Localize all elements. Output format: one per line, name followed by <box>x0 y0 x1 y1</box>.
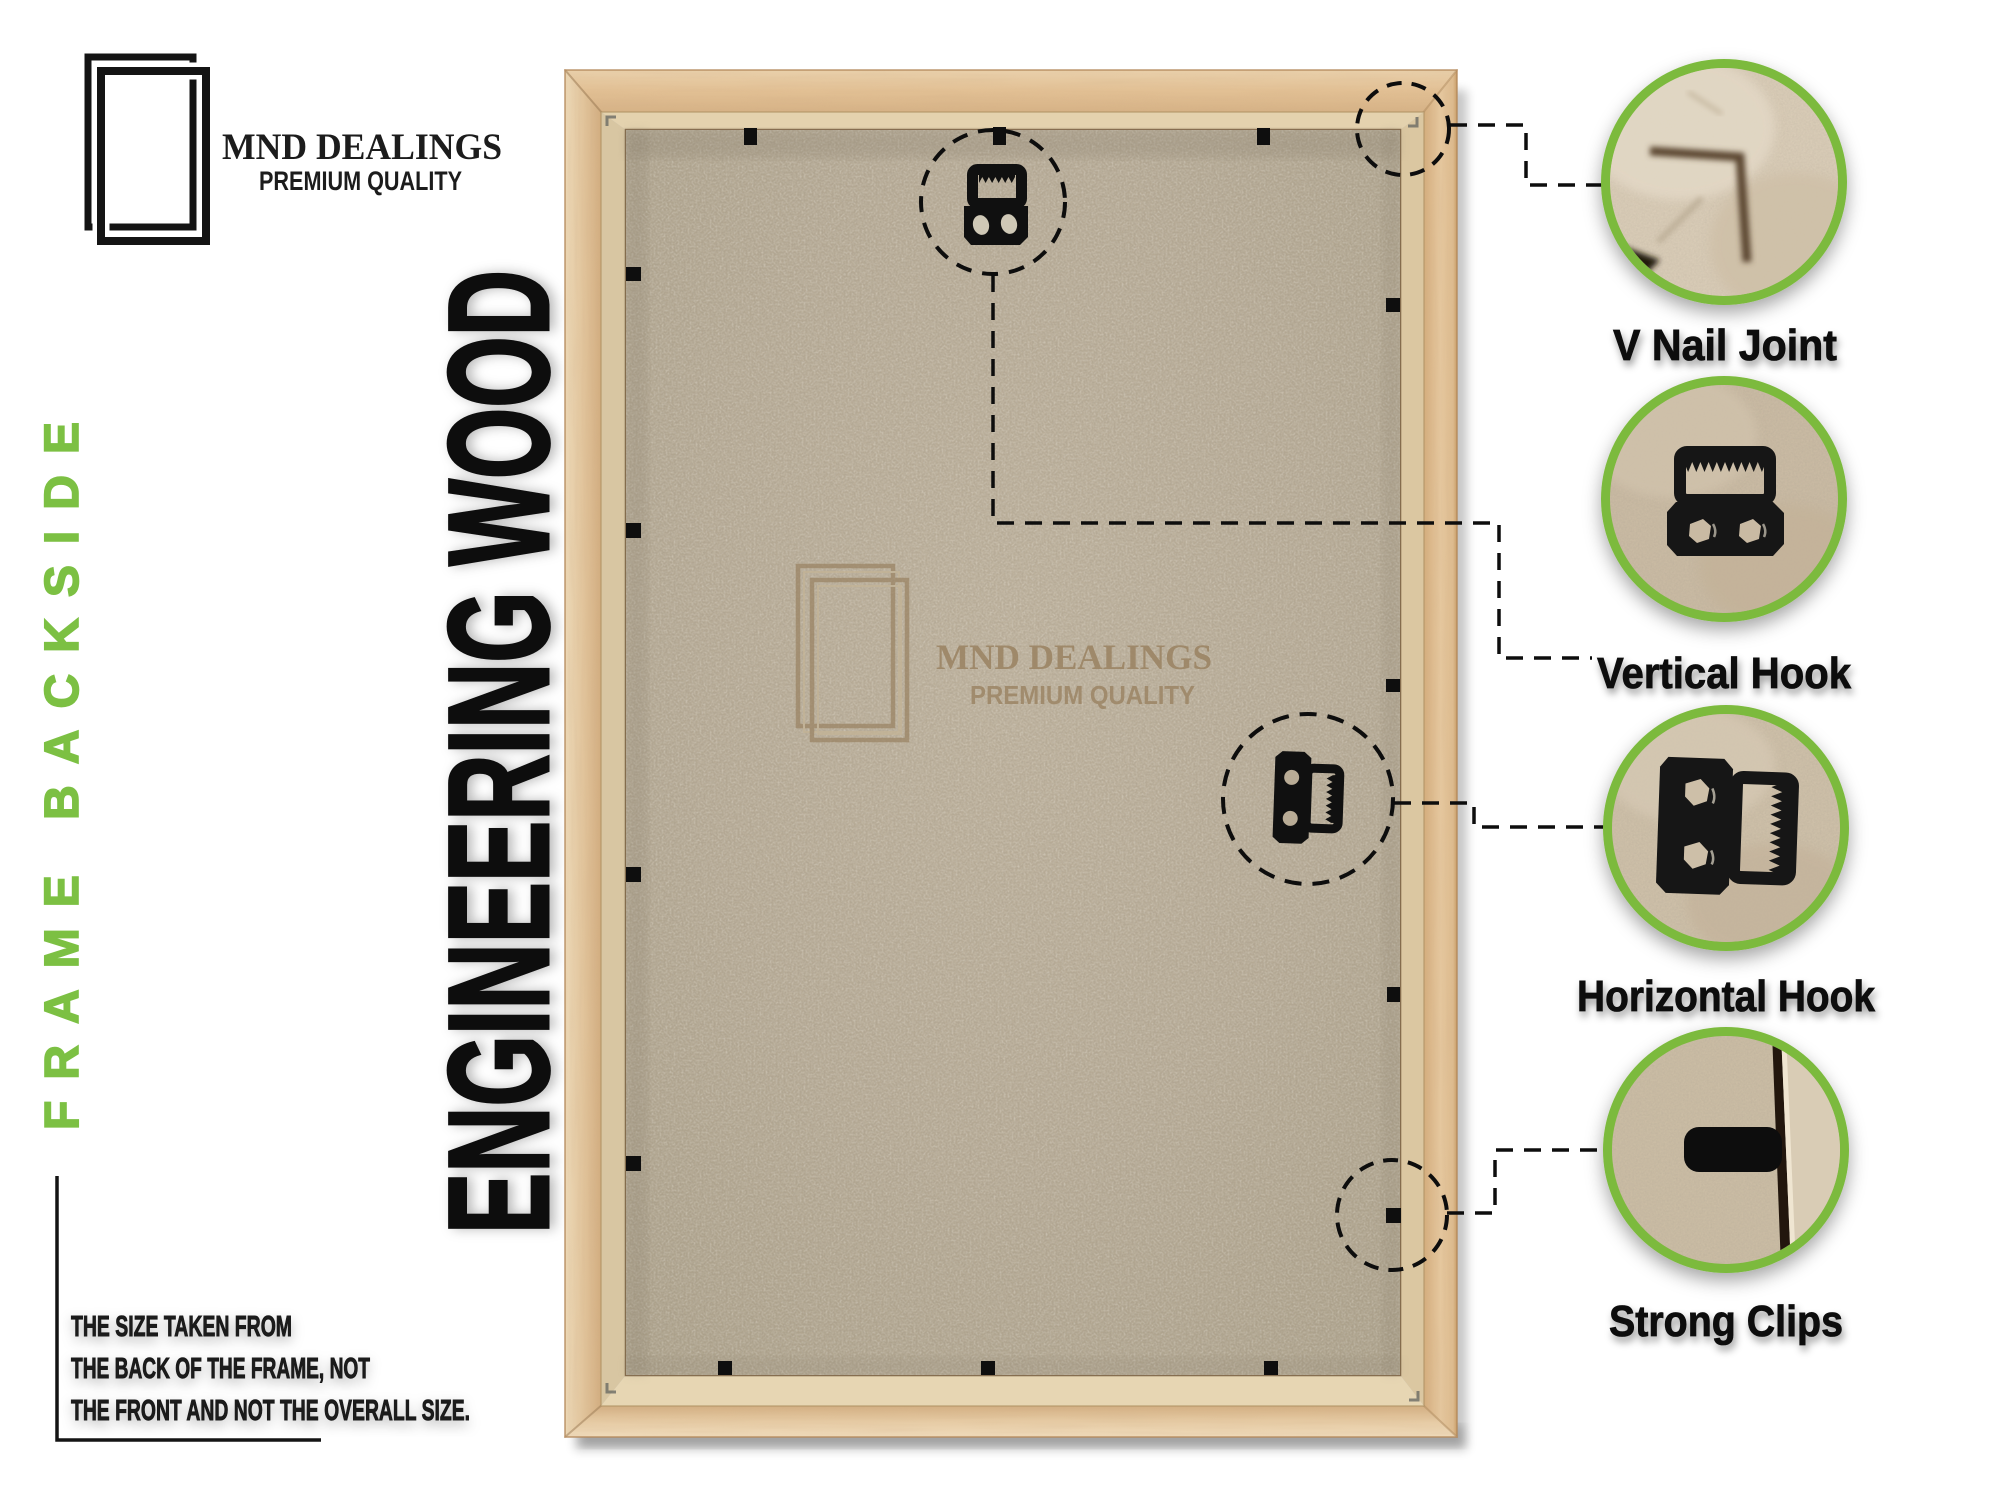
svg-text:ENGINEERING WOOD: ENGINEERING WOOD <box>420 270 579 1234</box>
svg-text:THE SIZE TAKEN FROM: THE SIZE TAKEN FROM <box>71 1311 292 1343</box>
svg-text:MND DEALINGS: MND DEALINGS <box>936 637 1212 677</box>
svg-text:Horizontal Hook: Horizontal Hook <box>1577 972 1875 1021</box>
svg-text:THE BACK OF THE FRAME, NOT: THE BACK OF THE FRAME, NOT <box>71 1353 370 1385</box>
svg-text:Strong Clips: Strong Clips <box>1609 1297 1843 1346</box>
svg-text:PREMIUM QUALITY: PREMIUM QUALITY <box>259 166 462 196</box>
svg-text:PREMIUM QUALITY: PREMIUM QUALITY <box>970 680 1195 710</box>
svg-text:MND DEALINGS: MND DEALINGS <box>222 127 502 168</box>
svg-text:Vertical Hook: Vertical Hook <box>1597 649 1851 698</box>
svg-text:V Nail Joint: V Nail Joint <box>1613 321 1837 370</box>
svg-text:THE FRONT AND NOT THE OVERALL: THE FRONT AND NOT THE OVERALL SIZE. <box>71 1395 470 1427</box>
